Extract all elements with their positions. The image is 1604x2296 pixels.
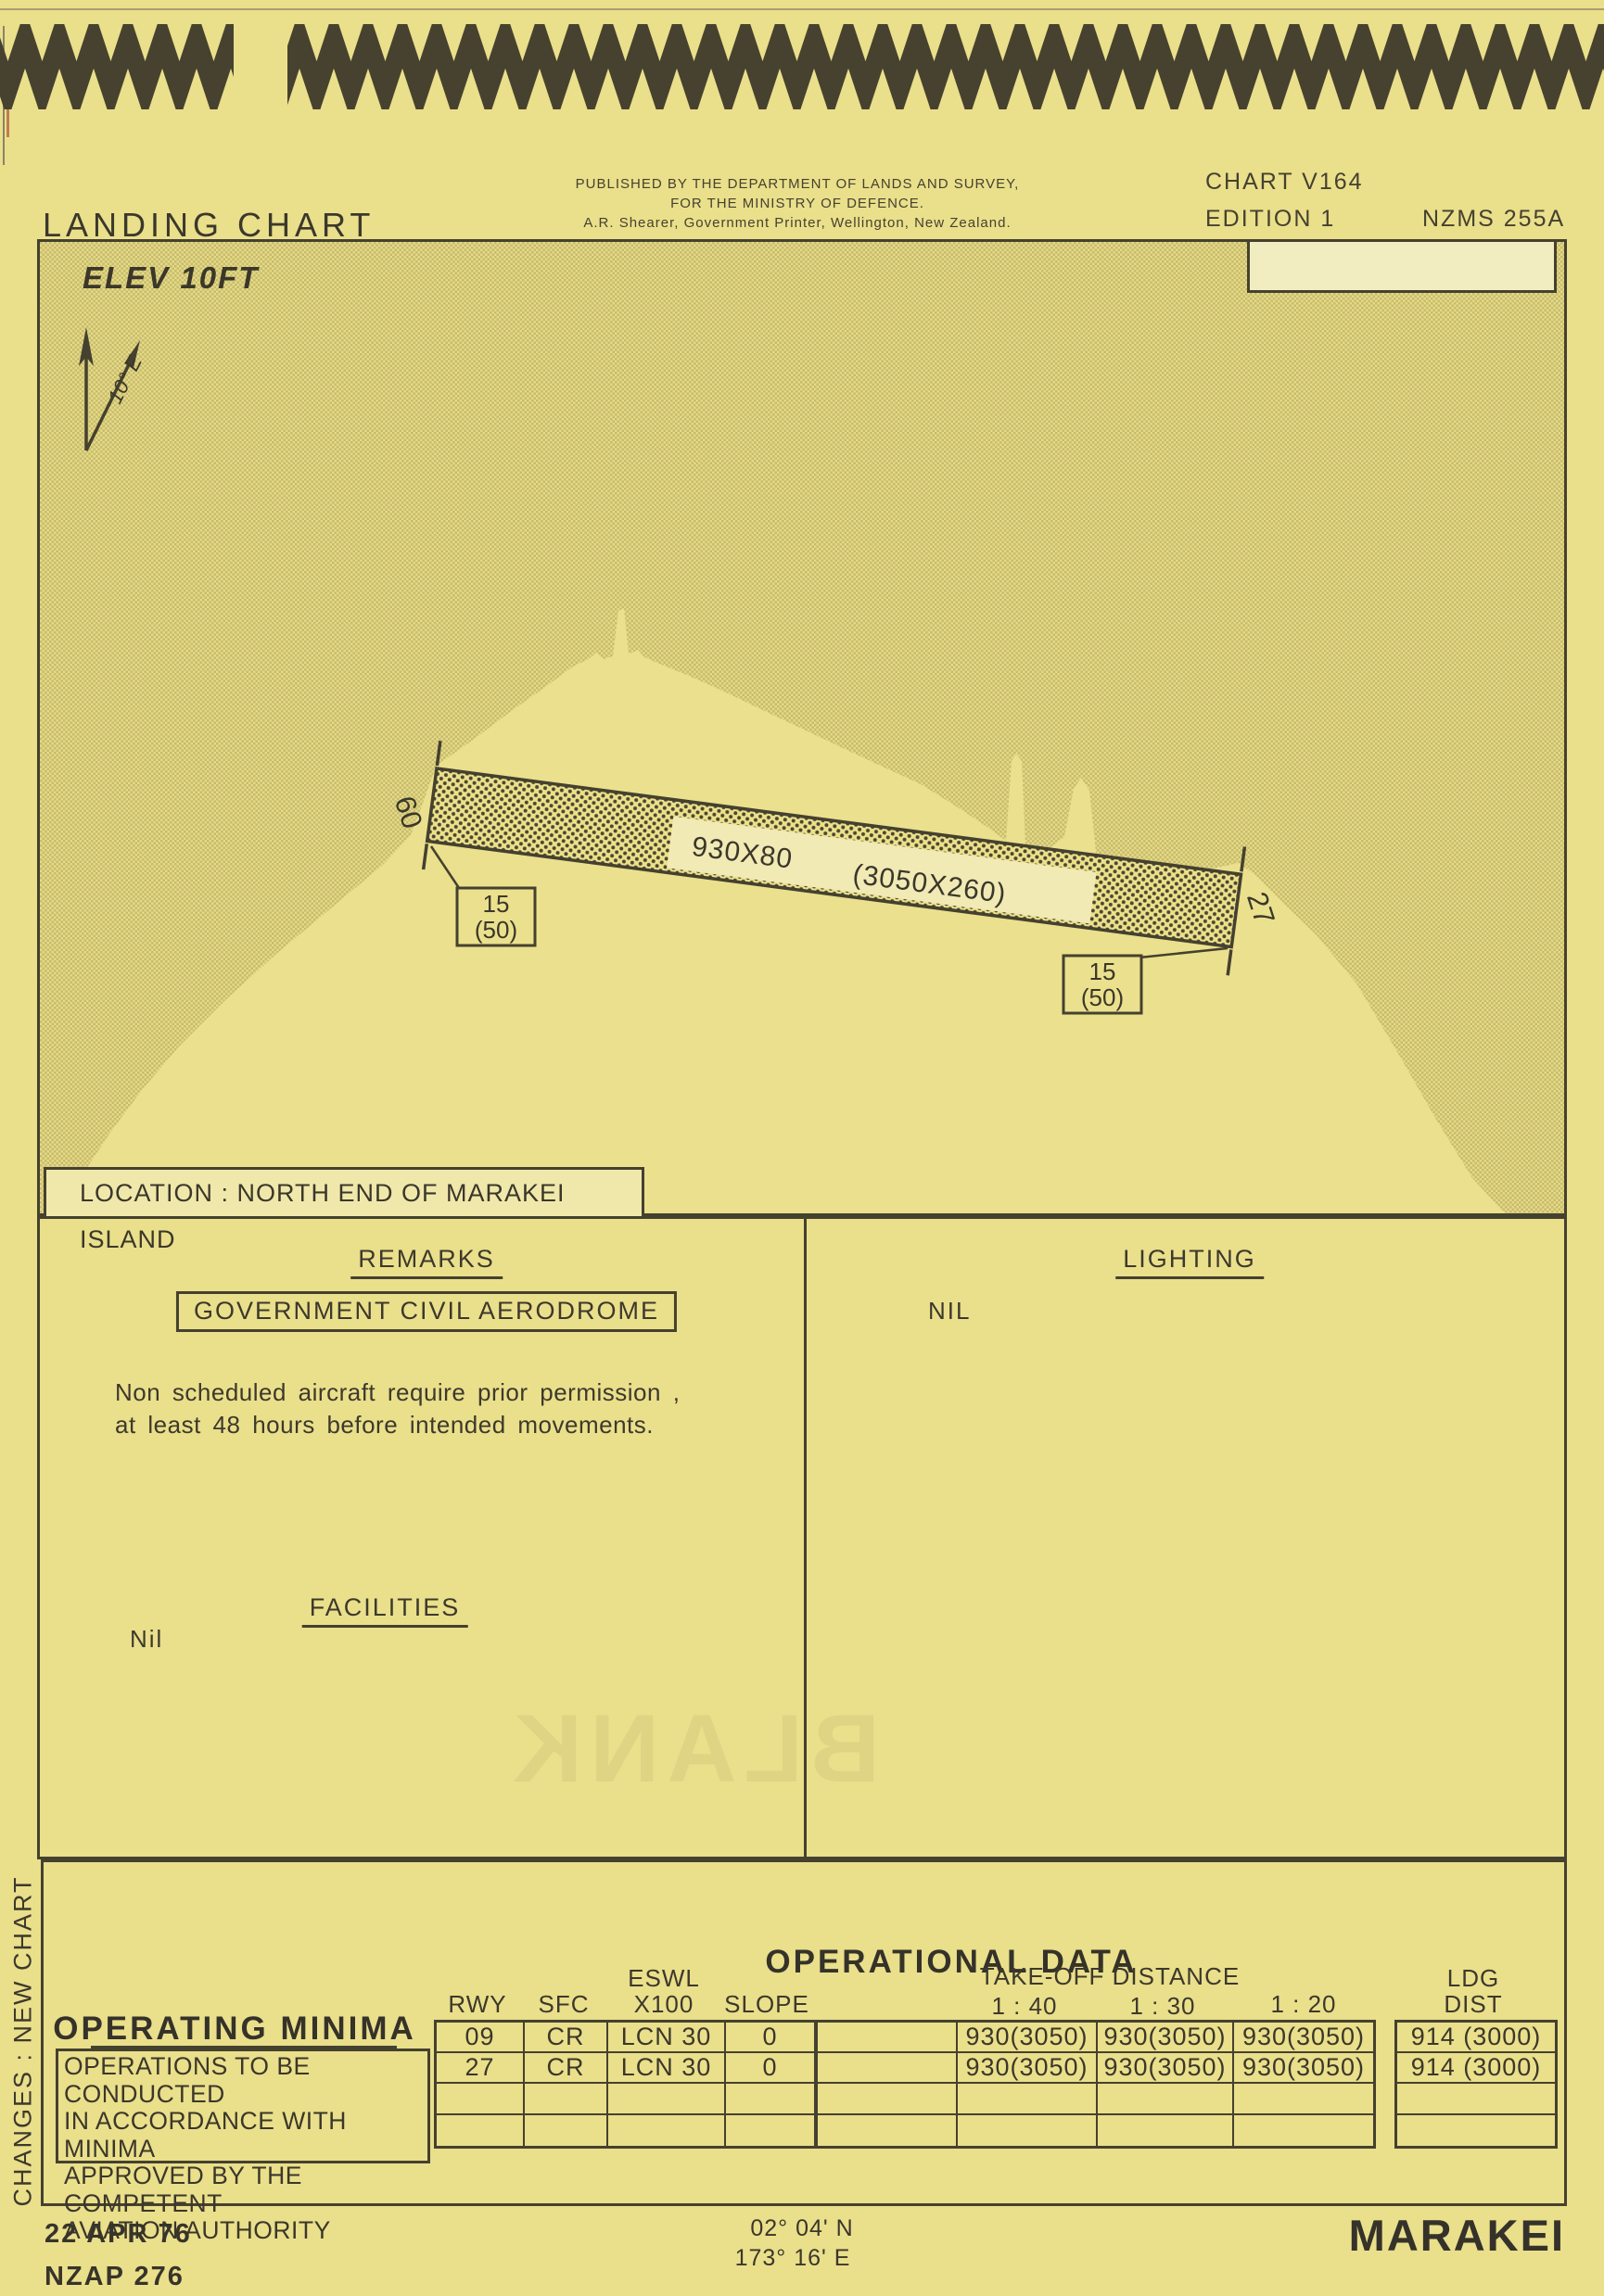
- cell: 914 (3000): [1397, 2023, 1555, 2053]
- cell: 930(3050): [958, 2053, 1098, 2084]
- col-header-140: 1 : 40: [991, 1992, 1057, 2021]
- showthrough-text: BLANK: [505, 1694, 880, 1805]
- cell: [525, 2115, 608, 2146]
- zigzag-gap: [234, 24, 287, 109]
- col-header-eswl2: X100: [634, 1990, 694, 2019]
- cell: 0: [726, 2023, 814, 2053]
- landing-chart-page: { "page": { "bg": "#eadf8b", "ink": "#3d…: [0, 0, 1604, 2296]
- aerodrome-map: 930X80 (3050X260) 09 27 15 (50) 15 (50) …: [37, 239, 1567, 1216]
- changes-note: CHANGES : NEW CHART: [9, 1901, 38, 2207]
- cell: [1397, 2084, 1555, 2115]
- chart-number: CHART V164: [1205, 169, 1364, 196]
- cell: 0: [726, 2053, 814, 2084]
- chart-edition: EDITION 1: [1205, 206, 1335, 233]
- aerodrome-name: MARAKEI: [1349, 2210, 1565, 2261]
- lighting-heading: LIGHTING: [1115, 1245, 1264, 1279]
- threshold-left-value: 15: [483, 890, 510, 918]
- zigzag-border: [0, 24, 1604, 109]
- cell: 930(3050): [1234, 2023, 1373, 2053]
- remarks-note-line1: Non scheduled aircraft require prior per…: [115, 1378, 680, 1407]
- cell: LCN 30: [608, 2053, 726, 2084]
- operating-minima-title: OPERATING MINIMA: [53, 2011, 416, 2048]
- cell: CR: [525, 2023, 608, 2053]
- ldg-table: 914 (3000) 914 (3000): [1394, 2020, 1558, 2149]
- publisher-block: PUBLISHED BY THE DEPARTMENT OF LANDS AND…: [482, 174, 1113, 233]
- cell: [525, 2084, 608, 2115]
- minima-line: APPROVED BY THE COMPETENT: [64, 2163, 422, 2217]
- cell: [1098, 2084, 1234, 2115]
- col-header-sfc: SFC: [539, 1990, 590, 2019]
- publisher-line2: FOR THE MINISTRY OF DEFENCE.: [482, 194, 1113, 213]
- operational-data-panel: OPERATIONAL DATA OPERATING MINIMA OPERAT…: [41, 1859, 1567, 2206]
- remarks-note-line2: at least 48 hours before intended moveme…: [115, 1411, 654, 1440]
- cell: [1234, 2115, 1373, 2146]
- threshold-left-value-ft: (50): [475, 916, 517, 944]
- cell: [958, 2084, 1098, 2115]
- map-canvas: 930X80 (3050X260) 09 27 15 (50) 15 (50) …: [40, 242, 1564, 1213]
- elevation-label: ELEV 10FT: [83, 260, 260, 295]
- facilities-value: Nil: [130, 1625, 163, 1654]
- aerodrome-type-box: GOVERNMENT CIVIL AERODROME: [176, 1291, 677, 1332]
- footer-longitude: 173° 16' E: [700, 2245, 885, 2272]
- takeoff-title: TAKE-OFF DISTANCE: [980, 1962, 1240, 1991]
- title-notch-box: [1247, 242, 1557, 293]
- facilities-heading: FACILITIES: [302, 1593, 468, 1628]
- cell: 930(3050): [1234, 2053, 1373, 2084]
- cell: [1098, 2115, 1234, 2146]
- footer-latitude: 02° 04' N: [709, 2215, 895, 2242]
- cell: [1397, 2115, 1555, 2146]
- cell: [818, 2053, 958, 2084]
- cell: [608, 2084, 726, 2115]
- cell: LCN 30: [608, 2023, 726, 2053]
- cell: [437, 2115, 525, 2146]
- takeoff-table: 930(3050) 930(3050) 930(3050) 930(3050) …: [815, 2020, 1376, 2149]
- minima-line: OPERATIONS TO BE CONDUCTED: [64, 2053, 422, 2108]
- scan-top-line: [0, 8, 1604, 10]
- col-header-130: 1 : 30: [1129, 1992, 1195, 2021]
- cell: 930(3050): [1098, 2023, 1234, 2053]
- location-box: LOCATION : NORTH END OF MARAKEI ISLAND: [44, 1167, 644, 1219]
- cell: CR: [525, 2053, 608, 2084]
- runway-table: 09 CR LCN 30 0 27 CR LCN 30 0: [434, 2020, 817, 2149]
- threshold-right-value-ft: (50): [1081, 983, 1124, 1011]
- cell: 27: [437, 2053, 525, 2084]
- lighting-value: NIL: [928, 1297, 971, 1326]
- ldg-header1: LDG: [1447, 1964, 1499, 1993]
- cell: [1234, 2084, 1373, 2115]
- cell: [437, 2084, 525, 2115]
- footer-date: 22 APR 76: [45, 2219, 192, 2250]
- publisher-line3: A.R. Shearer, Government Printer, Wellin…: [482, 213, 1113, 233]
- cell: [818, 2084, 958, 2115]
- publisher-line1: PUBLISHED BY THE DEPARTMENT OF LANDS AND…: [482, 174, 1113, 194]
- cell: 930(3050): [958, 2023, 1098, 2053]
- cell: 930(3050): [1098, 2053, 1234, 2084]
- col-header-eswl: ESWL: [628, 1964, 700, 1993]
- col-header-rwy: RWY: [448, 1990, 506, 2019]
- remarks-heading: REMARKS: [350, 1245, 503, 1279]
- cell: [818, 2115, 958, 2146]
- chart-series: NZMS 255A: [1422, 206, 1565, 233]
- cell: [818, 2023, 958, 2053]
- col-header-slope: SLOPE: [724, 1990, 809, 2019]
- footer-reference: NZAP 276: [45, 2262, 185, 2292]
- ldg-header2: DIST: [1444, 1990, 1502, 2019]
- cell: [608, 2115, 726, 2146]
- cell: [958, 2115, 1098, 2146]
- cell: 09: [437, 2023, 525, 2053]
- operating-minima-box: OPERATIONS TO BE CONDUCTED IN ACCORDANCE…: [56, 2049, 430, 2163]
- threshold-right-value: 15: [1089, 958, 1116, 985]
- col-header-120: 1 : 20: [1270, 1990, 1336, 2019]
- cell: [726, 2115, 814, 2146]
- cell: [726, 2084, 814, 2115]
- cell: 914 (3000): [1397, 2053, 1555, 2084]
- minima-line: IN ACCORDANCE WITH MINIMA: [64, 2108, 422, 2163]
